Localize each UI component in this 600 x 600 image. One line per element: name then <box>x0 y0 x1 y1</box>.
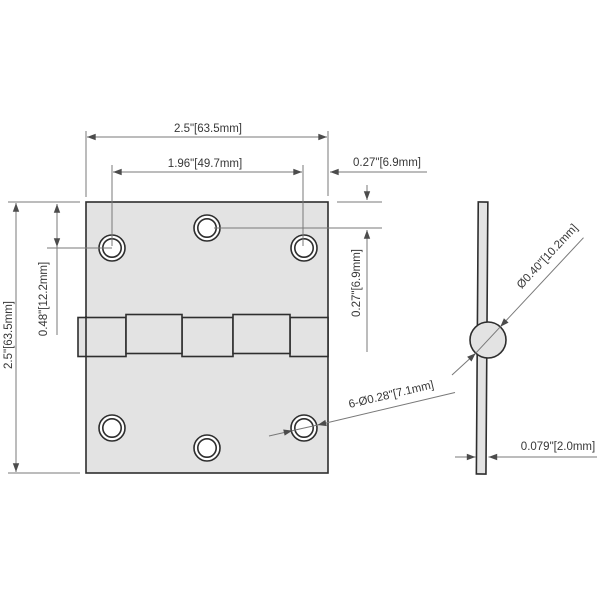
hole-top-right <box>291 235 317 261</box>
dim-arrow-knuckle-lower <box>452 353 476 375</box>
dim-edge-offset-horizontal-label: 0.27"[6.9mm] <box>353 157 421 169</box>
dim-leaf-thickness-label: 0.079"[2.0mm] <box>521 441 595 453</box>
dim-overall-height-label: 2.5"[63.5mm] <box>3 301 15 369</box>
dim-top-to-center-hole-label: 0.27"[6.9mm] <box>351 249 363 317</box>
dim-knuckle-diameter-label: Ø0.40"[10.2mm] <box>515 222 581 291</box>
hole-bottom-center <box>194 435 220 461</box>
dim-top-to-side-hole-label: 0.48"[12.2mm] <box>38 262 50 336</box>
dim-hole-spacing-label: 1.96"[49.7mm] <box>168 158 242 170</box>
dim-hole-diameter-callout-label: 6-Ø0.28"[7.1mm] <box>348 379 436 411</box>
side-view <box>470 202 506 474</box>
hole-bottom-left <box>99 415 125 441</box>
hinge-drawing-svg: 2.5"[63.5mm] 1.96"[49.7mm] 0.27"[6.9mm] … <box>0 0 600 600</box>
knuckle-segment-4 <box>233 315 290 354</box>
knuckle-segment-5 <box>290 318 328 357</box>
knuckle-segment-3 <box>182 318 233 357</box>
hinge-knuckle-barrel <box>78 315 328 358</box>
technical-drawing-canvas: 2.5"[63.5mm] 1.96"[49.7mm] 0.27"[6.9mm] … <box>0 0 600 600</box>
front-view <box>78 202 328 473</box>
knuckle-segment-2 <box>126 315 182 354</box>
dim-leader-knuckle-upper <box>500 238 583 327</box>
dim-overall-width-label: 2.5"[63.5mm] <box>174 123 242 135</box>
